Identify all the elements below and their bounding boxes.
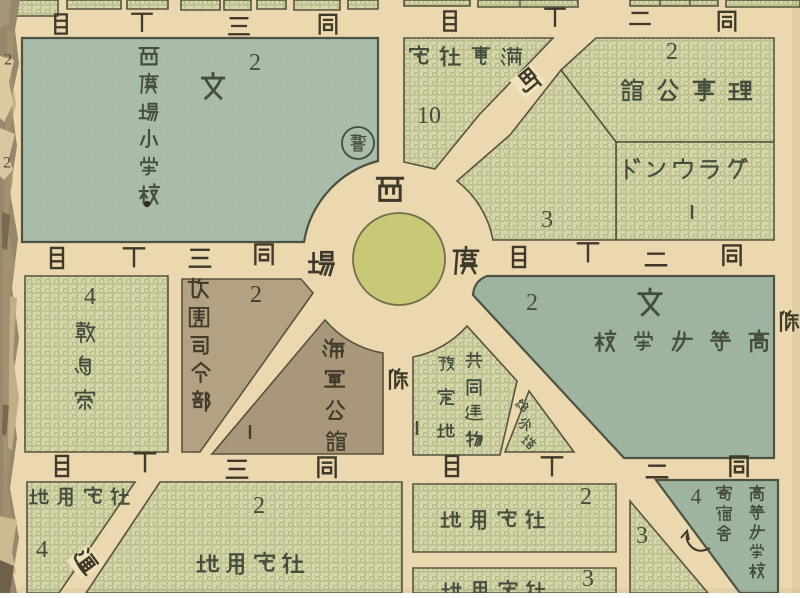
svg-text:2: 2 <box>3 155 11 172</box>
svg-text:2: 2 <box>666 39 678 65</box>
svg-text:2: 2 <box>580 484 592 510</box>
svg-text:2: 2 <box>4 52 12 69</box>
svg-text:2: 2 <box>253 493 265 519</box>
svg-text:4: 4 <box>84 284 96 310</box>
svg-text:4: 4 <box>36 537 48 563</box>
svg-text:3: 3 <box>541 207 553 233</box>
svg-text:10: 10 <box>417 103 441 129</box>
svg-text:4: 4 <box>691 484 702 509</box>
svg-text:2: 2 <box>250 282 262 308</box>
svg-text:3: 3 <box>636 523 648 549</box>
svg-text:2: 2 <box>249 50 261 76</box>
svg-text:2: 2 <box>526 290 538 316</box>
